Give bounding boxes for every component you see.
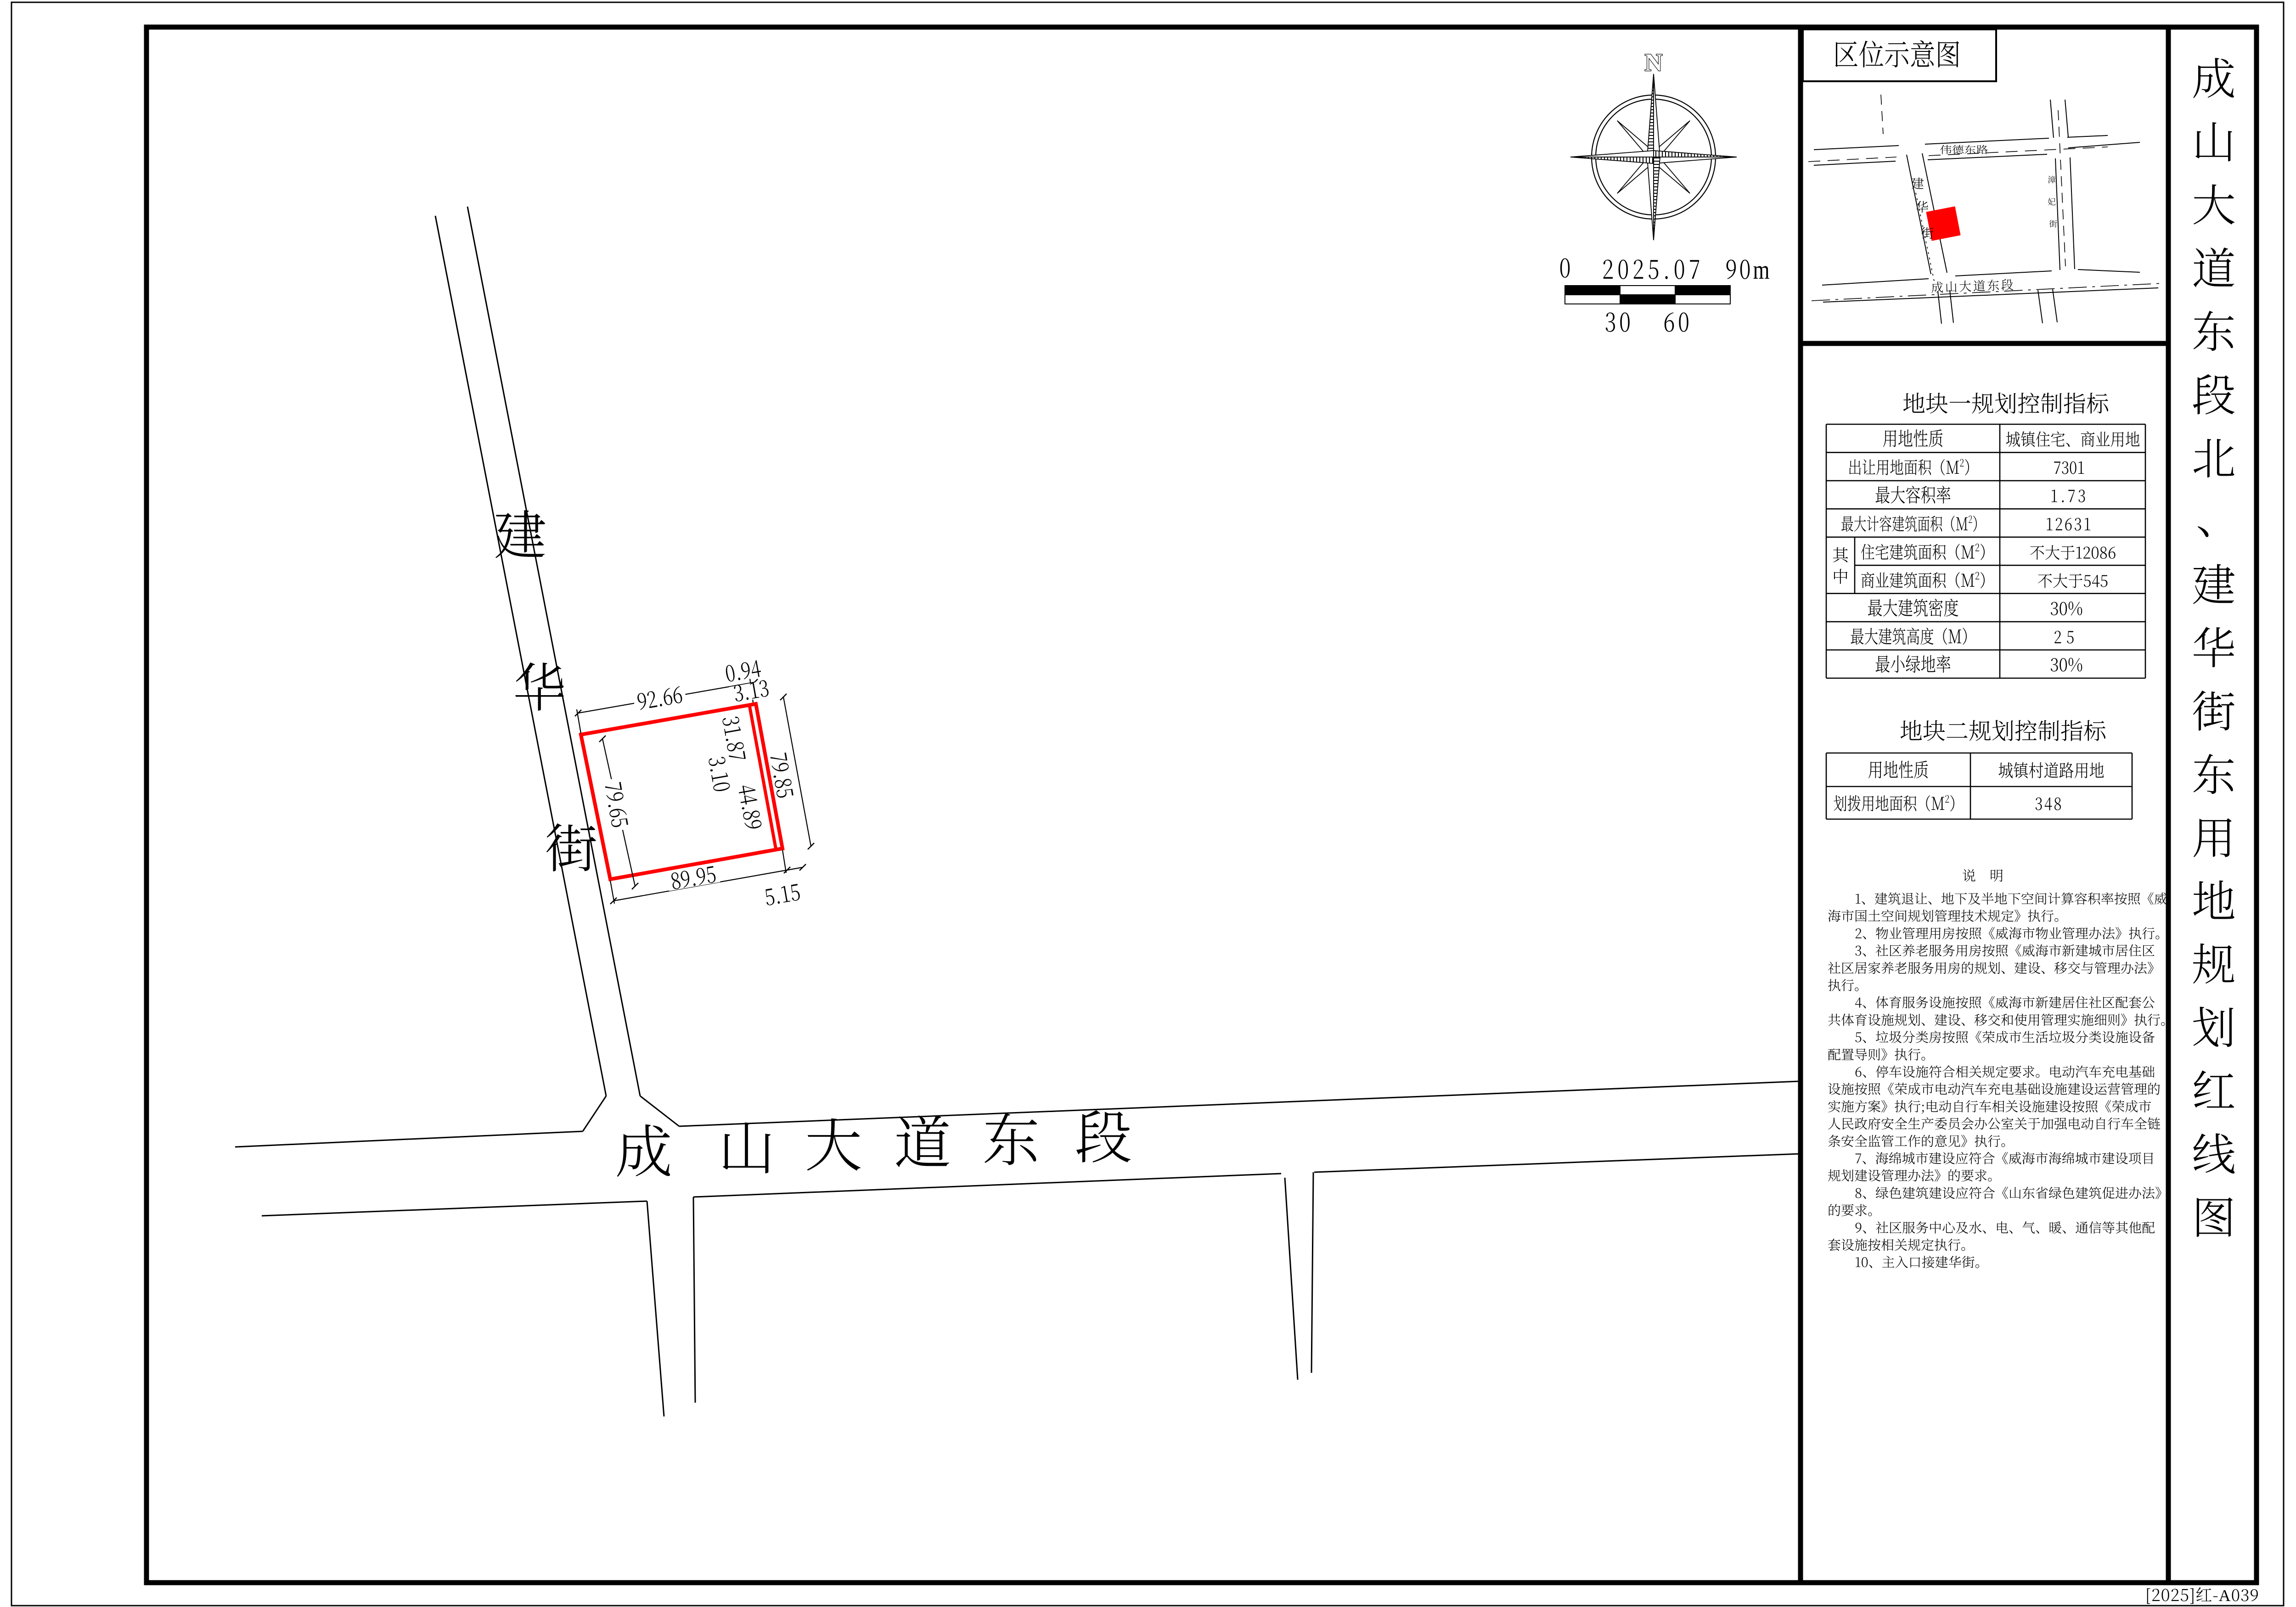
svg-text:条安全监管工作的意见》执行。: 条安全监管工作的意见》执行。 — [1828, 1131, 2014, 1150]
svg-text:执行。: 执行。 — [1828, 976, 1868, 995]
svg-text:7、海绵城市建设应符合《威海市海绵城市建设项目: 7、海绵城市建设应符合《威海市海绵城市建设项目 — [1855, 1149, 2155, 1168]
svg-text:海市国土空间规划管理技术规定》执行。: 海市国土空间规划管理技术规定》执行。 — [1828, 906, 2067, 925]
svg-text:规: 规 — [2192, 930, 2236, 993]
svg-text:东: 东 — [2192, 298, 2236, 360]
svg-text:的要求。: 的要求。 — [1828, 1201, 1881, 1219]
svg-text:图: 图 — [2192, 1183, 2236, 1246]
svg-text:2、物业管理用房按照《威海市物业管理办法》执行。: 2、物业管理用房按照《威海市物业管理办法》执行。 — [1855, 923, 2168, 942]
svg-text:60: 60 — [1663, 302, 1692, 340]
svg-text:成山大道东段: 成山大道东段 — [1930, 275, 2015, 296]
svg-text:说 明: 说 明 — [1962, 865, 2003, 885]
svg-text:7301: 7301 — [2053, 455, 2085, 479]
svg-text:成: 成 — [2192, 45, 2236, 107]
svg-text:山: 山 — [2192, 108, 2236, 171]
svg-text:N: N — [1645, 49, 1663, 76]
svg-text:地块二规划控制指标: 地块二规划控制指标 — [1900, 713, 2107, 746]
svg-text:成: 成 — [615, 1106, 673, 1189]
svg-text:段: 段 — [2192, 361, 2236, 424]
svg-text:商业建筑面积（Ｍ2）: 商业建筑面积（Ｍ2） — [1861, 567, 1994, 592]
svg-text:最大计容建筑面积（Ｍ2）: 最大计容建筑面积（Ｍ2） — [1841, 511, 1985, 536]
svg-text:设施按照《荣成市电动汽车充电基础设施建设运营管理的: 设施按照《荣成市电动汽车充电基础设施建设运营管理的 — [1828, 1079, 2161, 1098]
svg-text:[2025]红-A039: [2025]红-A039 — [2145, 1583, 2259, 1606]
svg-text:妃: 妃 — [2048, 196, 2056, 208]
svg-text:华: 华 — [2192, 614, 2236, 677]
svg-text:套设施按相关规定执行。: 套设施按相关规定执行。 — [1828, 1235, 1974, 1254]
svg-text:最小绿地率: 最小绿地率 — [1875, 649, 1951, 677]
svg-text:30%: 30% — [2050, 650, 2083, 677]
svg-text:线: 线 — [2192, 1120, 2236, 1183]
svg-text:90m: 90m — [1726, 249, 1772, 287]
svg-text:建: 建 — [1911, 174, 1924, 192]
svg-text:1、建筑退让、地下及半地下空间计算容积率按照《威: 1、建筑退让、地下及半地下空间计算容积率按照《威 — [1855, 889, 2167, 908]
svg-text:最大建筑高度（Ｍ）: 最大建筑高度（Ｍ） — [1850, 623, 1976, 649]
svg-text:配置导则》执行。: 配置导则》执行。 — [1828, 1045, 1934, 1063]
svg-text:道: 道 — [894, 1097, 951, 1180]
svg-text:3.13: 3.13 — [731, 669, 771, 708]
svg-text:华: 华 — [1916, 197, 1929, 216]
svg-text:伟德东路: 伟德东路 — [1940, 142, 1988, 157]
svg-text:8、绿色建筑建设应符合《山东省绿色建筑促进办法》: 8、绿色建筑建设应符合《山东省绿色建筑促进办法》 — [1855, 1183, 2168, 1202]
svg-text:社区居家养老服务用房的规划、建设、移交与管理办法》: 社区居家养老服务用房的规划、建设、移交与管理办法》 — [1828, 958, 2161, 977]
svg-text:街: 街 — [545, 807, 597, 882]
svg-text:城镇村道路用地: 城镇村道路用地 — [1998, 757, 2104, 782]
svg-text:2025.07: 2025.07 — [1602, 249, 1704, 287]
svg-text:4、体育服务设施按照《威海市新建居住社区配套公: 4、体育服务设施按照《威海市新建居住社区配套公 — [1855, 993, 2155, 1011]
svg-text:建: 建 — [494, 494, 546, 569]
svg-text:25: 25 — [2054, 624, 2079, 649]
svg-text:5.15: 5.15 — [762, 873, 803, 912]
svg-text:道: 道 — [2192, 234, 2236, 297]
svg-text:住宅建筑面积（Ｍ2）: 住宅建筑面积（Ｍ2） — [1861, 539, 1994, 564]
svg-text:街: 街 — [2049, 218, 2057, 230]
svg-text:大: 大 — [2192, 171, 2236, 234]
svg-text:9、社区服务中心及水、电、气、暖、通信等其他配: 9、社区服务中心及水、电、气、暖、通信等其他配 — [1855, 1218, 2155, 1236]
svg-text:最大容积率: 最大容积率 — [1875, 480, 1951, 508]
svg-text:城镇住宅、商业用地: 城镇住宅、商业用地 — [2006, 426, 2140, 450]
svg-text:地: 地 — [2192, 867, 2236, 930]
svg-text:山: 山 — [718, 1103, 776, 1186]
svg-text:0: 0 — [1559, 247, 1570, 286]
svg-text:东: 东 — [983, 1095, 1040, 1177]
svg-text:规划建设管理办法》的要求。: 规划建设管理办法》的要求。 — [1828, 1166, 2001, 1185]
svg-text:地块一规划控制指标: 地块一规划控制指标 — [1902, 386, 2110, 419]
svg-text:3、社区养老服务用房按照《威海市新建城市居住区: 3、社区养老服务用房按照《威海市新建城市居住区 — [1855, 941, 2155, 960]
svg-text:用: 用 — [2192, 804, 2236, 867]
svg-text:大: 大 — [805, 1100, 862, 1183]
svg-text:中: 中 — [1832, 564, 1849, 588]
svg-text:5、垃圾分类房按照《荣成市生活垃圾分类设施设备: 5、垃圾分类房按照《荣成市生活垃圾分类设施设备 — [1855, 1028, 2155, 1046]
svg-text:漳: 漳 — [2048, 174, 2056, 185]
svg-text:北: 北 — [2192, 424, 2236, 487]
svg-text:街: 街 — [2192, 677, 2236, 740]
svg-text:共体育设施规划、建设、移交和使用管理实施细则》执行。: 共体育设施规划、建设、移交和使用管理实施细则》执行。 — [1828, 1010, 2174, 1029]
svg-text:出让用地面积（Ｍ2）: 出让用地面积（Ｍ2） — [1848, 454, 1978, 479]
svg-text:用地性质: 用地性质 — [1868, 754, 1929, 782]
svg-text:不大于545: 不大于545 — [2037, 568, 2109, 591]
svg-text:华: 华 — [513, 646, 566, 722]
svg-text:用地性质: 用地性质 — [1883, 423, 1944, 451]
svg-text:30: 30 — [1604, 302, 1633, 340]
svg-text:348: 348 — [2035, 791, 2063, 815]
svg-text:街: 街 — [1921, 224, 1934, 242]
svg-text:划拨用地面积（Ｍ2）: 划拨用地面积（Ｍ2） — [1833, 790, 1964, 815]
svg-text:实施方案》执行;电动自行车相关设施建设按照《荣成市: 实施方案》执行;电动自行车相关设施建设按照《荣成市 — [1828, 1096, 2151, 1115]
svg-text:东: 东 — [2192, 741, 2236, 803]
svg-text:建: 建 — [2192, 551, 2236, 613]
svg-text:12631: 12631 — [2045, 511, 2093, 536]
svg-text:段: 段 — [1075, 1092, 1132, 1174]
svg-text:30%: 30% — [2050, 594, 2083, 620]
svg-text:不大于12086: 不大于12086 — [2030, 540, 2116, 563]
svg-text:区位示意图: 区位示意图 — [1833, 32, 1961, 74]
svg-text:人民政府安全生产委员会办公室关于加强电动自行车全链: 人民政府安全生产委员会办公室关于加强电动自行车全链 — [1828, 1114, 2161, 1133]
svg-text:其: 其 — [1832, 543, 1849, 566]
svg-text:6、停车设施符合相关规定要求。电动汽车充电基础: 6、停车设施符合相关规定要求。电动汽车充电基础 — [1855, 1062, 2155, 1081]
svg-text:划: 划 — [2192, 994, 2236, 1056]
svg-text:、: 、 — [2196, 484, 2240, 547]
svg-text:红: 红 — [2192, 1057, 2236, 1120]
svg-text:最大建筑密度: 最大建筑密度 — [1868, 593, 1959, 621]
svg-text:1.73: 1.73 — [2050, 483, 2088, 507]
svg-text:10、主入口接建华街。: 10、主入口接建华街。 — [1855, 1253, 1988, 1271]
